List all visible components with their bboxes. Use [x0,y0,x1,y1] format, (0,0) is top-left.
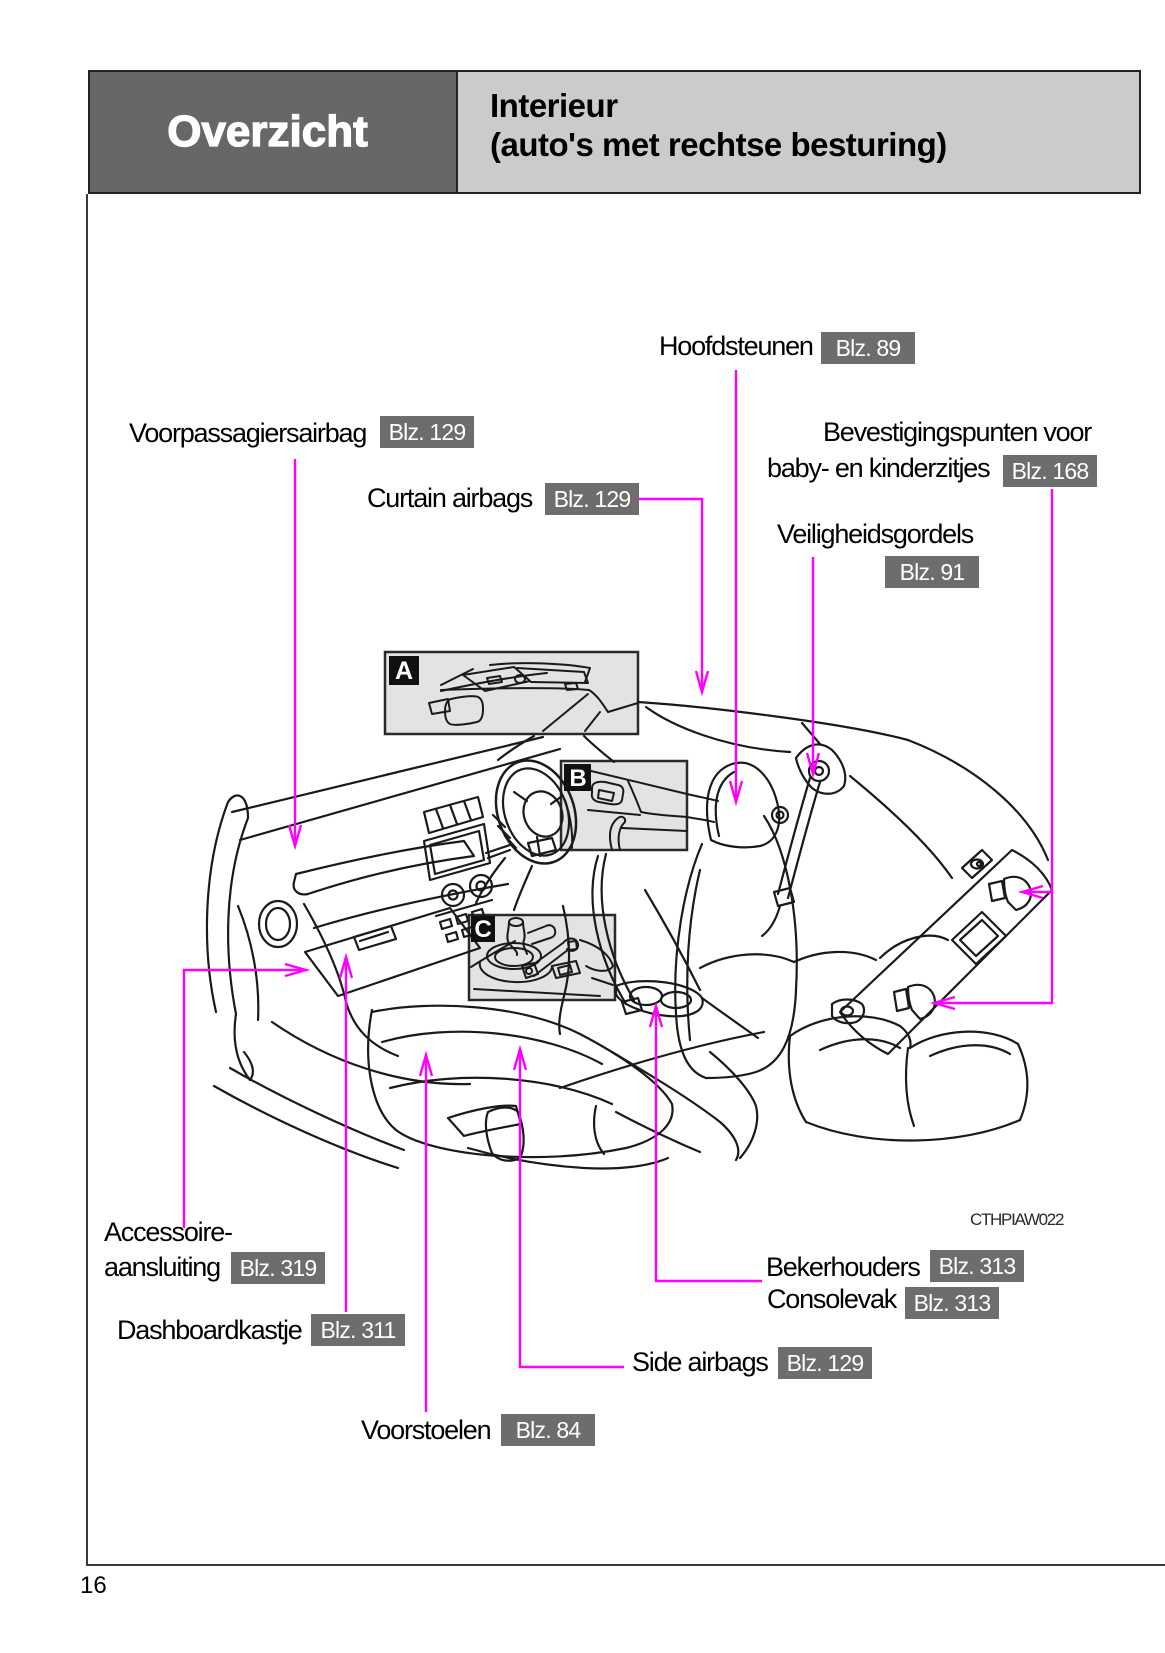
svg-text:C: C [474,916,491,943]
svg-text:B: B [569,765,586,792]
svg-text:A: A [395,657,413,685]
